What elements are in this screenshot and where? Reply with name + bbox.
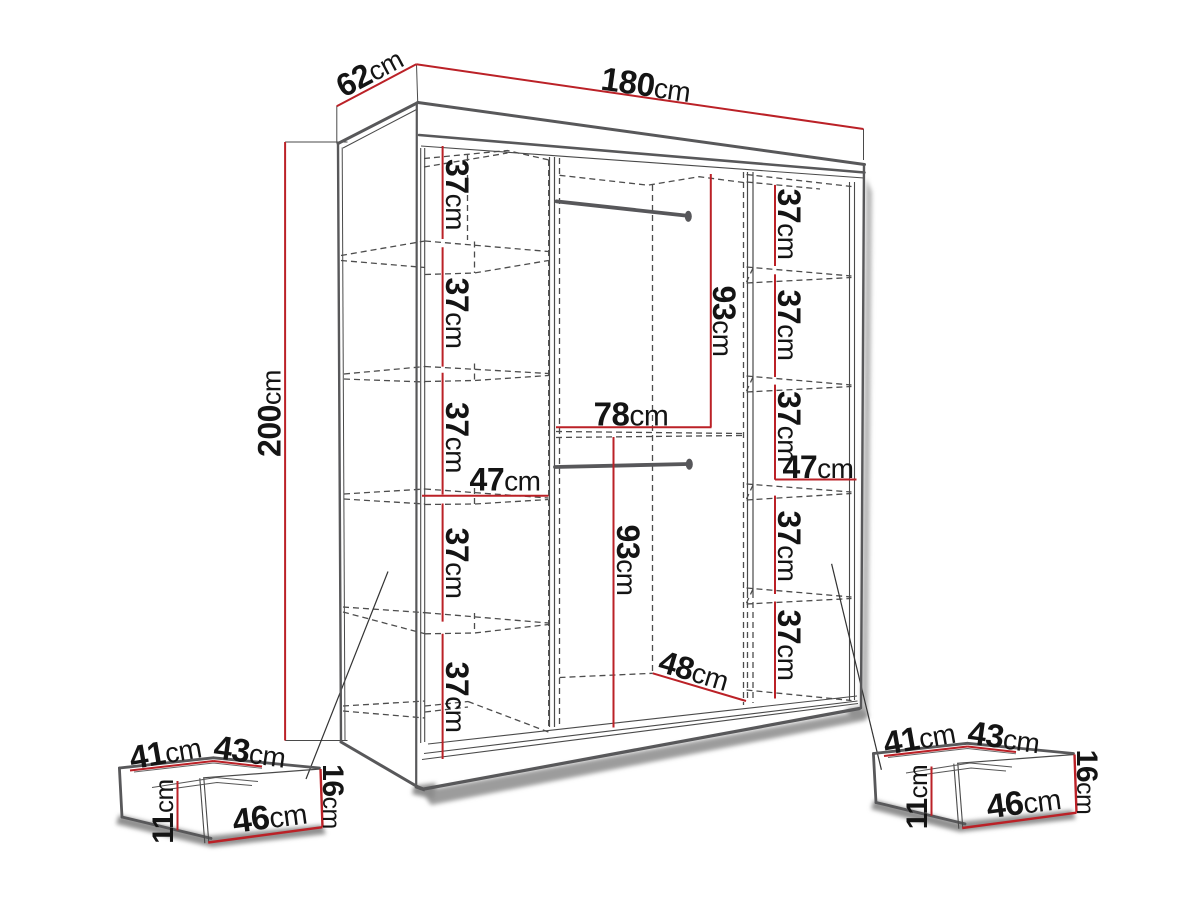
svg-text:37cm: 37cm bbox=[771, 610, 807, 681]
svg-text:200cm: 200cm bbox=[252, 370, 288, 457]
svg-text:37cm: 37cm bbox=[771, 290, 807, 361]
svg-text:37cm: 37cm bbox=[771, 189, 807, 260]
svg-text:37cm: 37cm bbox=[439, 159, 475, 230]
svg-text:78cm: 78cm bbox=[594, 395, 669, 432]
svg-text:16cm: 16cm bbox=[316, 764, 349, 829]
svg-text:37cm: 37cm bbox=[439, 528, 475, 599]
svg-text:37cm: 37cm bbox=[439, 662, 475, 733]
svg-text:37cm: 37cm bbox=[771, 511, 807, 582]
svg-text:47cm: 47cm bbox=[470, 462, 541, 498]
svg-text:11cm: 11cm bbox=[147, 779, 180, 843]
svg-text:93cm: 93cm bbox=[610, 525, 646, 596]
svg-text:47cm: 47cm bbox=[783, 449, 854, 485]
svg-text:16cm: 16cm bbox=[1070, 750, 1103, 815]
svg-text:93cm: 93cm bbox=[706, 286, 742, 357]
svg-text:37cm: 37cm bbox=[439, 278, 475, 349]
svg-text:11cm: 11cm bbox=[901, 765, 934, 829]
